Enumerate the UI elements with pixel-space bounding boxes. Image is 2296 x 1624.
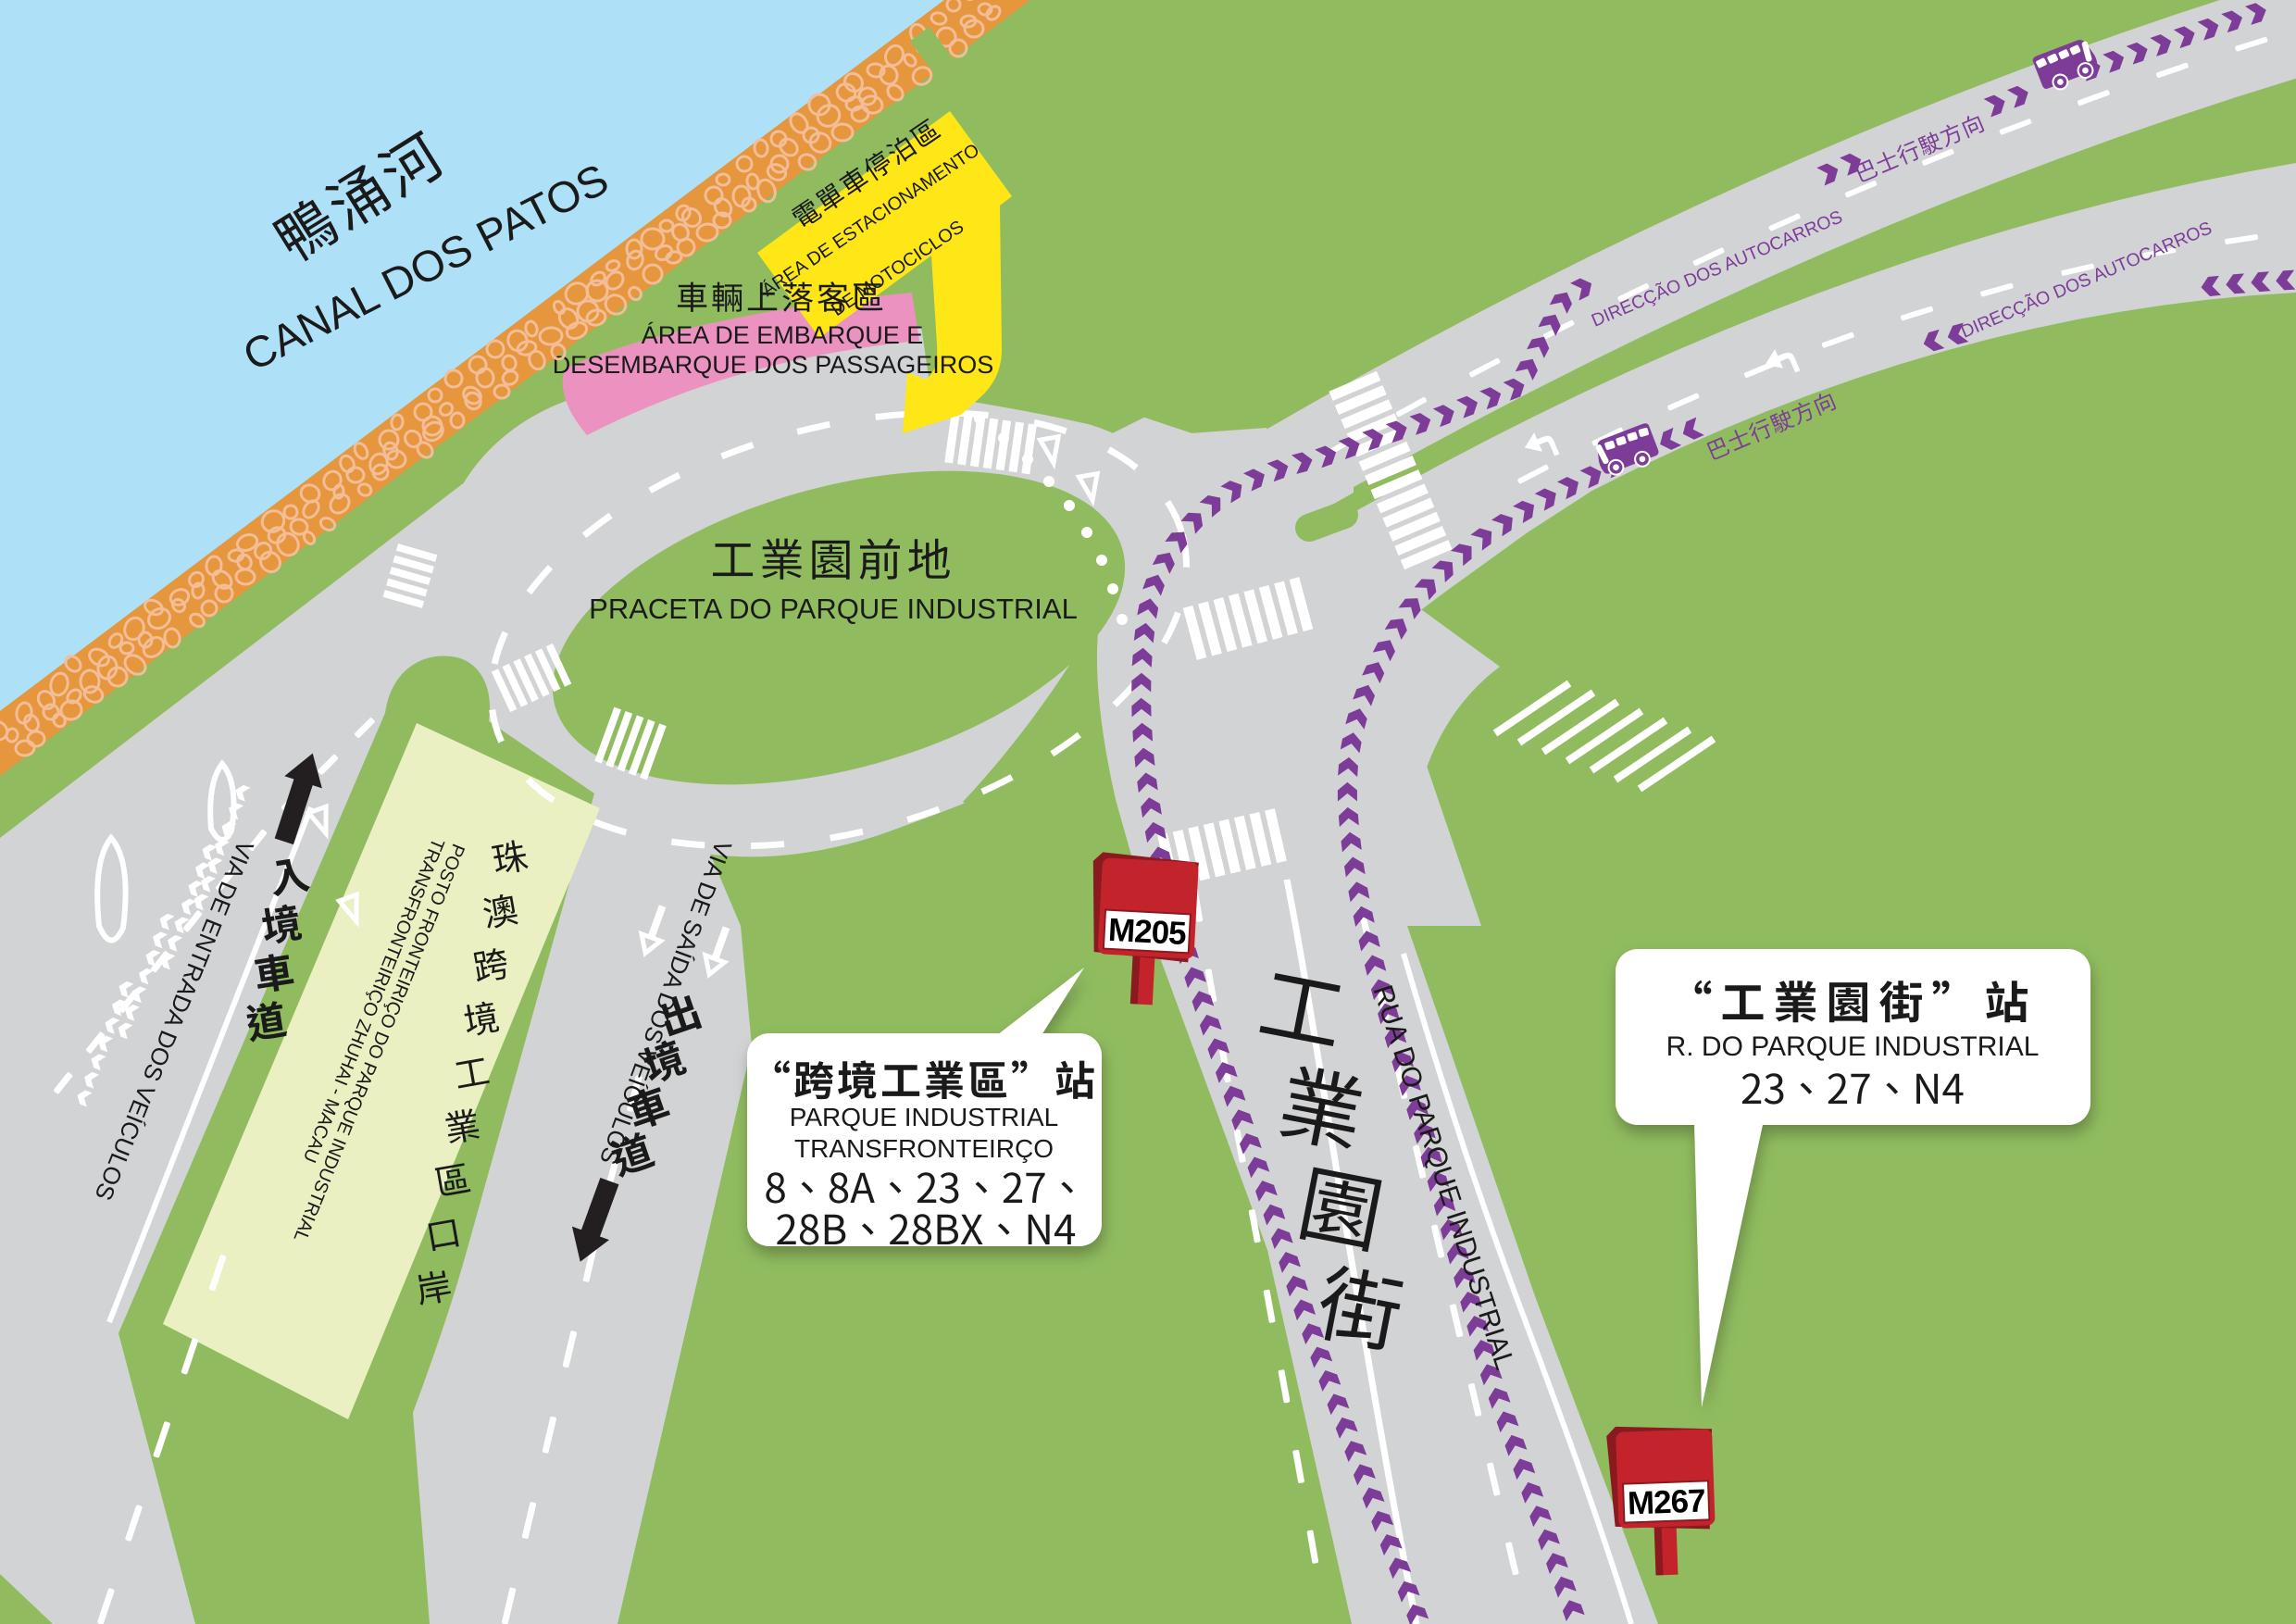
svg-text:M205: M205 xyxy=(1107,912,1187,952)
svg-text:M267: M267 xyxy=(1627,1483,1705,1522)
svg-text:ÁREA DE EMBARQUE E: ÁREA DE EMBARQUE E xyxy=(642,321,924,349)
svg-text:TRANSFRONTEIRÇO: TRANSFRONTEIRÇO xyxy=(794,1134,1054,1163)
svg-text:PRACETA DO PARQUE INDUSTRIAL: PRACETA DO PARQUE INDUSTRIAL xyxy=(589,593,1078,625)
svg-text:DESEMBARQUE DOS PASSAGEIROS: DESEMBARQUE DOS PASSAGEIROS xyxy=(553,351,994,379)
svg-text:PARQUE INDUSTRIAL: PARQUE INDUSTRIAL xyxy=(790,1103,1058,1131)
svg-text:R. DO PARQUE INDUSTRIAL: R. DO PARQUE INDUSTRIAL xyxy=(1666,1031,2040,1062)
